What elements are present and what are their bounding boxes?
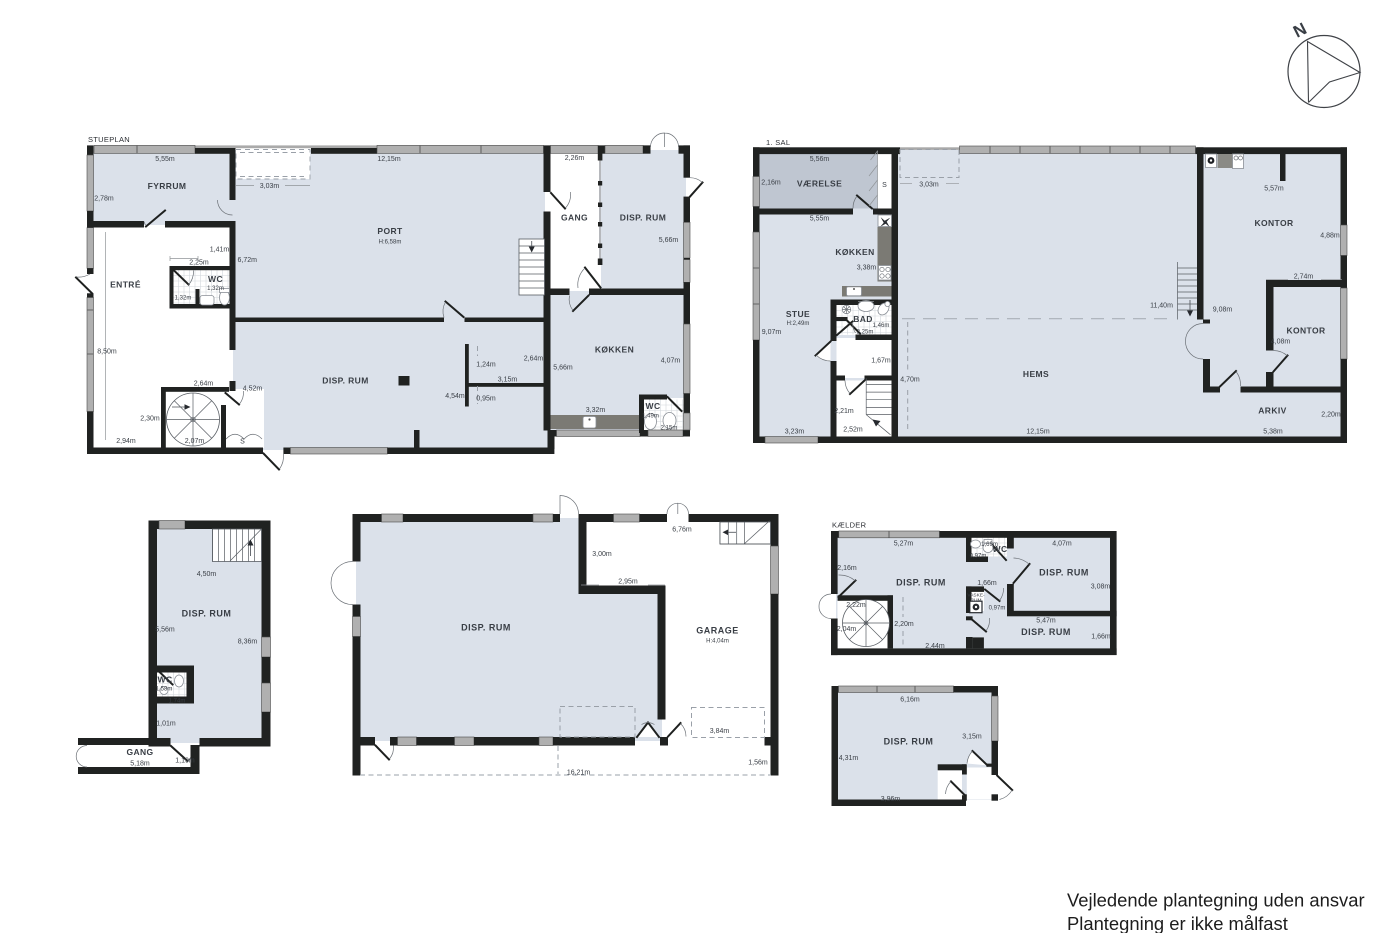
svg-text:4,07m: 4,07m — [1052, 541, 1072, 548]
svg-text:9,07m: 9,07m — [762, 329, 782, 336]
svg-text:5,56m: 5,56m — [810, 156, 830, 163]
svg-text:S: S — [882, 182, 887, 189]
svg-text:1,41m: 1,41m — [210, 247, 230, 254]
svg-text:H:6,58m: H:6,58m — [379, 240, 402, 246]
svg-text:3,96m: 3,96m — [881, 796, 901, 803]
svg-text:4,08m: 4,08m — [1271, 339, 1291, 346]
svg-text:3,32m: 3,32m — [586, 407, 606, 414]
svg-text:2,26m: 2,26m — [565, 155, 585, 162]
svg-text:2,78m: 2,78m — [94, 196, 114, 203]
svg-text:H:2,49m: H:2,49m — [787, 321, 810, 327]
svg-text:DISP. RUM: DISP. RUM — [1039, 568, 1089, 578]
svg-text:1,19m: 1,19m — [175, 758, 195, 765]
svg-text:4,52m: 4,52m — [243, 386, 263, 393]
svg-text:5,18m: 5,18m — [130, 761, 150, 768]
svg-text:6,16m: 6,16m — [900, 697, 920, 704]
svg-text:5,47m: 5,47m — [1036, 618, 1056, 625]
svg-text:DISP. RUM: DISP. RUM — [620, 213, 666, 223]
svg-text:DISP. RUM: DISP. RUM — [322, 376, 368, 386]
svg-text:1,66m: 1,66m — [977, 580, 997, 587]
svg-text:1,56m: 1,56m — [748, 760, 768, 767]
svg-text:8,36m: 8,36m — [238, 639, 258, 646]
svg-text:WC: WC — [646, 401, 661, 411]
svg-text:6,76m: 6,76m — [672, 527, 692, 534]
svg-text:VÆRELSE: VÆRELSE — [797, 179, 842, 189]
svg-text:WC: WC — [158, 675, 173, 685]
svg-text:STUE: STUE — [786, 309, 810, 319]
svg-text:WC: WC — [993, 544, 1008, 554]
svg-text:PORT: PORT — [377, 226, 403, 236]
svg-text:5,66m: 5,66m — [553, 365, 573, 372]
svg-text:H:4,04m: H:4,04m — [706, 639, 729, 645]
svg-text:ARKIV: ARKIV — [1258, 406, 1286, 416]
svg-text:4,88m: 4,88m — [1320, 233, 1340, 240]
svg-text:GANG: GANG — [561, 213, 588, 223]
svg-text:ENTRÉ: ENTRÉ — [110, 280, 141, 290]
svg-text:2,94m: 2,94m — [116, 438, 136, 445]
svg-text:FYRRUM: FYRRUM — [148, 181, 187, 191]
svg-text:BAD: BAD — [853, 314, 873, 324]
svg-text:9,08m: 9,08m — [1213, 307, 1233, 314]
svg-text:GARAGE: GARAGE — [696, 626, 739, 636]
svg-text:RUM: RUM — [971, 598, 982, 604]
svg-text:3,08m: 3,08m — [1091, 584, 1111, 591]
svg-text:2,25m: 2,25m — [857, 330, 874, 336]
svg-text:1,49m: 1,49m — [642, 414, 659, 420]
svg-text:1,32m: 1,32m — [175, 296, 192, 302]
svg-text:2,64m: 2,64m — [194, 381, 214, 388]
svg-text:GANG: GANG — [126, 747, 153, 757]
svg-text:2,30m: 2,30m — [140, 416, 160, 423]
svg-text:5,56m: 5,56m — [155, 627, 175, 634]
svg-text:3,38m: 3,38m — [857, 265, 877, 272]
svg-text:KONTOR: KONTOR — [1286, 326, 1325, 336]
svg-text:2,44m: 2,44m — [925, 643, 945, 650]
svg-text:1,32m: 1,32m — [207, 286, 224, 292]
svg-text:2,25m: 2,25m — [189, 260, 209, 267]
svg-text:1,58m: 1,58m — [156, 687, 173, 693]
svg-text:3,15m: 3,15m — [962, 734, 982, 741]
svg-text:5,55m: 5,55m — [810, 216, 830, 223]
svg-text:2,52m: 2,52m — [843, 427, 863, 434]
svg-text:STUEPLAN: STUEPLAN — [88, 135, 130, 144]
svg-text:12,15m: 12,15m — [1026, 429, 1050, 436]
svg-text:S: S — [240, 439, 245, 446]
svg-text:2,74m: 2,74m — [1294, 274, 1314, 281]
svg-text:5,55m: 5,55m — [155, 156, 175, 163]
svg-text:1,46m: 1,46m — [873, 323, 890, 329]
svg-text:KØKKEN: KØKKEN — [835, 247, 874, 257]
svg-text:1,66m: 1,66m — [1091, 634, 1111, 641]
svg-text:2,22m: 2,22m — [846, 602, 866, 609]
svg-text:3,00m: 3,00m — [592, 551, 612, 558]
svg-text:1,24m: 1,24m — [476, 362, 496, 369]
svg-text:KONTOR: KONTOR — [1254, 218, 1293, 228]
svg-text:5,38m: 5,38m — [1263, 429, 1283, 436]
svg-text:11,40m: 11,40m — [1150, 303, 1173, 310]
svg-text:0,95m: 0,95m — [476, 396, 496, 403]
svg-text:8,50m: 8,50m — [97, 349, 117, 356]
svg-text:4,07m: 4,07m — [661, 358, 681, 365]
svg-text:6,72m: 6,72m — [238, 257, 258, 264]
svg-text:5,66m: 5,66m — [659, 237, 679, 244]
svg-text:2,15m: 2,15m — [661, 426, 678, 432]
svg-text:Vejledende plantegning uden an: Vejledende plantegning uden ansvar — [1067, 890, 1365, 911]
svg-text:1,01m: 1,01m — [156, 721, 176, 728]
svg-text:2,64m: 2,64m — [524, 356, 544, 363]
svg-text:3,84m: 3,84m — [710, 728, 730, 735]
svg-text:KØKKEN: KØKKEN — [595, 345, 634, 355]
svg-text:DISP. RUM: DISP. RUM — [182, 609, 232, 619]
svg-text:DISP. RUM: DISP. RUM — [884, 737, 934, 747]
svg-text:2,21m: 2,21m — [834, 408, 854, 415]
svg-text:DISP. RUM: DISP. RUM — [1021, 627, 1071, 637]
svg-text:WC: WC — [208, 274, 223, 284]
svg-text:0,97m: 0,97m — [970, 554, 987, 560]
svg-text:VASKE-: VASKE- — [967, 593, 985, 599]
svg-text:2,07m: 2,07m — [185, 438, 205, 445]
svg-text:3,03m: 3,03m — [919, 182, 939, 189]
svg-text:4,54m: 4,54m — [445, 393, 465, 400]
svg-text:4,70m: 4,70m — [900, 377, 920, 384]
svg-text:2,04m: 2,04m — [837, 626, 857, 633]
svg-text:1,67m: 1,67m — [871, 358, 891, 365]
svg-text:Plantegning er ikke målfast: Plantegning er ikke målfast — [1067, 913, 1288, 933]
svg-text:5,27m: 5,27m — [894, 541, 914, 548]
svg-text:2,95m: 2,95m — [618, 579, 638, 586]
svg-text:2,20m: 2,20m — [1321, 412, 1341, 419]
svg-text:3,23m: 3,23m — [785, 429, 805, 436]
svg-text:HEMS: HEMS — [1023, 369, 1049, 379]
svg-text:3,15m: 3,15m — [498, 377, 518, 384]
svg-text:DISP. RUM: DISP. RUM — [461, 623, 511, 633]
svg-text:16,21m: 16,21m — [567, 770, 591, 777]
svg-text:0,97m: 0,97m — [989, 606, 1006, 612]
svg-text:2,16m: 2,16m — [761, 180, 781, 187]
svg-text:12,15m: 12,15m — [377, 156, 401, 163]
svg-text:4,31m: 4,31m — [839, 755, 859, 762]
svg-text:5,57m: 5,57m — [1264, 186, 1284, 193]
svg-text:KÆLDER: KÆLDER — [832, 521, 867, 530]
svg-text:2,16m: 2,16m — [837, 565, 857, 572]
svg-text:1,74m: 1,74m — [169, 699, 186, 705]
svg-text:DISP. RUM: DISP. RUM — [896, 578, 946, 588]
svg-text:4,50m: 4,50m — [197, 571, 217, 578]
svg-text:2,20m: 2,20m — [894, 621, 914, 628]
svg-text:3,03m: 3,03m — [260, 183, 280, 190]
svg-text:1. SAL: 1. SAL — [766, 138, 790, 147]
